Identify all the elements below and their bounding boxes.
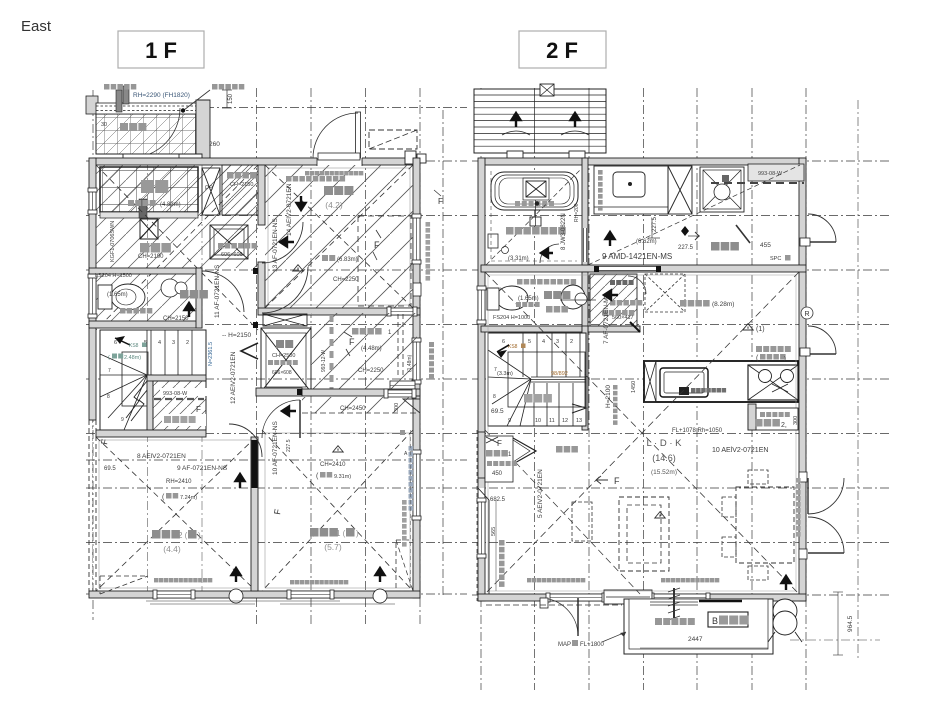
svg-text:69.5: 69.5 [104,466,116,472]
svg-text:12: 12 [562,418,568,424]
svg-text:(3.3m): (3.3m) [497,371,513,377]
svg-text:): ) [198,531,201,540]
svg-text:PS: PS [205,186,213,192]
svg-text:(4.48m): (4.48m) [361,346,382,352]
svg-text:2447: 2447 [688,636,703,643]
svg-text:CH=2500: CH=2500 [272,353,295,359]
svg-text:1450: 1450 [631,381,637,393]
svg-text:(8.28m): (8.28m) [712,301,734,308]
svg-text:1 (: 1 ( [336,529,346,538]
svg-text:69.5: 69.5 [491,408,504,415]
svg-text:): ) [784,356,786,362]
svg-text:3: 3 [348,187,353,196]
svg-text:10 AF-0721EN-NS: 10 AF-0721EN-NS [272,421,279,475]
svg-text:10: 10 [535,418,541,424]
svg-text:993-08-W: 993-08-W [163,391,188,397]
svg-text:(5.7): (5.7) [324,542,342,552]
svg-text:CH=2150: CH=2150 [163,316,189,322]
svg-text:F: F [196,405,201,414]
svg-text:RH=200: RH=200 [574,203,580,222]
svg-text:LS204 H=1500: LS204 H=1500 [95,273,132,279]
svg-text:F: F [374,240,380,250]
svg-text:227.5: 227.5 [678,245,694,251]
svg-text:CH=2190: CH=2190 [138,254,164,260]
svg-text:F: F [497,439,502,448]
svg-text:FL+1078 Rh=1050: FL+1078 Rh=1050 [672,428,723,434]
svg-text:(15.52m): (15.52m) [651,469,677,476]
svg-text:7.24m): 7.24m) [180,495,197,501]
svg-text:1 F: 1 F [145,38,177,63]
svg-text:CH=2450: CH=2450 [340,406,366,412]
svg-text:(4.4): (4.4) [163,544,181,554]
svg-text:300: 300 [394,403,400,412]
svg-text:CH=2410: CH=2410 [320,462,346,468]
svg-text:8 AElV2-0721EN: 8 AElV2-0721EN [137,453,186,460]
svg-text:2 F: 2 F [546,38,578,63]
svg-text:(3.31m): (3.31m) [508,256,529,262]
svg-text:682.5: 682.5 [490,497,506,503]
svg-text:4: 4 [542,339,545,345]
svg-text:3: 3 [556,339,559,345]
svg-text:CH=2250: CH=2250 [333,277,359,283]
svg-text:8: 8 [493,394,496,400]
svg-text:KS8: KS8 [508,344,518,350]
svg-text:(6.83m): (6.83m) [337,257,358,263]
svg-text:10 AElV2-0721EN: 10 AElV2-0721EN [712,447,768,454]
svg-text:(: ( [108,355,110,361]
svg-text:H=2100: H=2100 [605,385,612,408]
svg-text:11 AF-0721EN-NS: 11 AF-0721EN-NS [214,264,221,318]
svg-text:5: 5 [528,339,531,345]
svg-text:14 AElV2-0721EN: 14 AElV2-0721EN [286,183,293,236]
svg-text:FL+1800: FL+1800 [580,642,605,648]
svg-text:227.5: 227.5 [286,439,292,452]
svg-text:13: 13 [576,418,582,424]
svg-text:KS8: KS8 [129,343,139,349]
svg-text:98/892: 98/892 [551,371,568,377]
svg-text:2 (: 2 ( [178,531,188,540]
svg-text:5 AElV2-0721EN: 5 AElV2-0721EN [537,469,544,518]
svg-text:9: 9 [121,417,124,423]
svg-text:7: 7 [108,368,111,374]
svg-text:3: 3 [172,340,175,346]
svg-text:30: 30 [101,122,107,128]
svg-text:7 AF-0721EN-MS: 7 AF-0721EN-MS [603,292,610,344]
svg-text:455: 455 [760,242,771,249]
svg-text:6: 6 [114,340,117,346]
svg-text:8 JW3-0822N: 8 JW3-0822N [561,213,567,250]
svg-text:(6.62m): (6.62m) [636,239,657,245]
svg-text:(4.83m): (4.83m) [160,202,181,208]
svg-text:2.48m): 2.48m) [124,355,141,361]
svg-text:R: R [804,311,809,318]
svg-text:L · D · K: L · D · K [646,438,682,449]
svg-text:227.5: 227.5 [652,216,658,232]
svg-text:11: 11 [549,418,555,424]
svg-text:N=2361.5: N=2361.5 [208,342,214,366]
svg-text:): ) [356,529,359,538]
svg-text:9: 9 [508,418,511,424]
svg-text:2: 2 [570,339,573,345]
svg-text:560×417: 560×417 [612,315,634,321]
svg-text:8: 8 [107,394,110,400]
svg-text:13 AF-0721EN-NS: 13 AF-0721EN-NS [272,218,279,272]
svg-text:964.5: 964.5 [847,615,854,632]
svg-text:F: F [438,197,443,206]
svg-text:(1.65m): (1.65m) [518,296,539,302]
svg-text:300: 300 [793,416,799,425]
svg-text:RH=2290 (FH1820): RH=2290 (FH1820) [133,92,190,99]
svg-text:East: East [21,18,52,35]
svg-text:2: 2 [186,340,189,346]
svg-text:(4.2): (4.2) [325,200,343,210]
svg-text:F: F [349,337,355,347]
svg-text:-- H=2150: -- H=2150 [222,332,251,339]
svg-text:B: B [712,616,718,626]
svg-text:(14.6): (14.6) [652,453,676,463]
svg-text:606×606: 606×606 [221,252,243,258]
svg-text:(1): (1) [756,326,765,333]
svg-text:2,: 2, [781,422,787,429]
svg-text:993-12-W: 993-12-W [321,350,327,372]
svg-text:SPC: SPC [770,256,781,262]
svg-text:(1.65m): (1.65m) [107,292,128,298]
svg-text:RH=2410: RH=2410 [166,479,192,485]
svg-text:4: 4 [158,340,161,346]
svg-text:FS204 H=1000: FS204 H=1000 [493,315,530,321]
svg-text:(1.48m): (1.48m) [407,354,413,372]
svg-text:606×608: 606×608 [272,370,292,376]
svg-text:9.31m): 9.31m) [334,474,351,480]
svg-text:6: 6 [502,339,505,345]
svg-text:9 AMD-1421EN-MS: 9 AMD-1421EN-MS [602,252,672,261]
svg-text:565: 565 [491,527,497,536]
svg-text:993-08-W: 993-08-W [758,171,783,177]
svg-text:12 AElV2-0721EN: 12 AElV2-0721EN [230,351,237,404]
svg-text:CH=2150: CH=2150 [230,182,253,188]
svg-text:MAP: MAP [558,642,571,648]
svg-text:150: 150 [228,93,234,104]
svg-text:9 AF-0721EN-NS: 9 AF-0721EN-NS [177,465,228,472]
svg-text:260: 260 [209,141,220,148]
svg-text:CH=2250: CH=2250 [358,368,384,374]
svg-text:F: F [614,476,620,486]
svg-text:450: 450 [492,471,503,477]
svg-text:KGF1-0706SWN: KGF1-0706SWN [110,221,116,262]
